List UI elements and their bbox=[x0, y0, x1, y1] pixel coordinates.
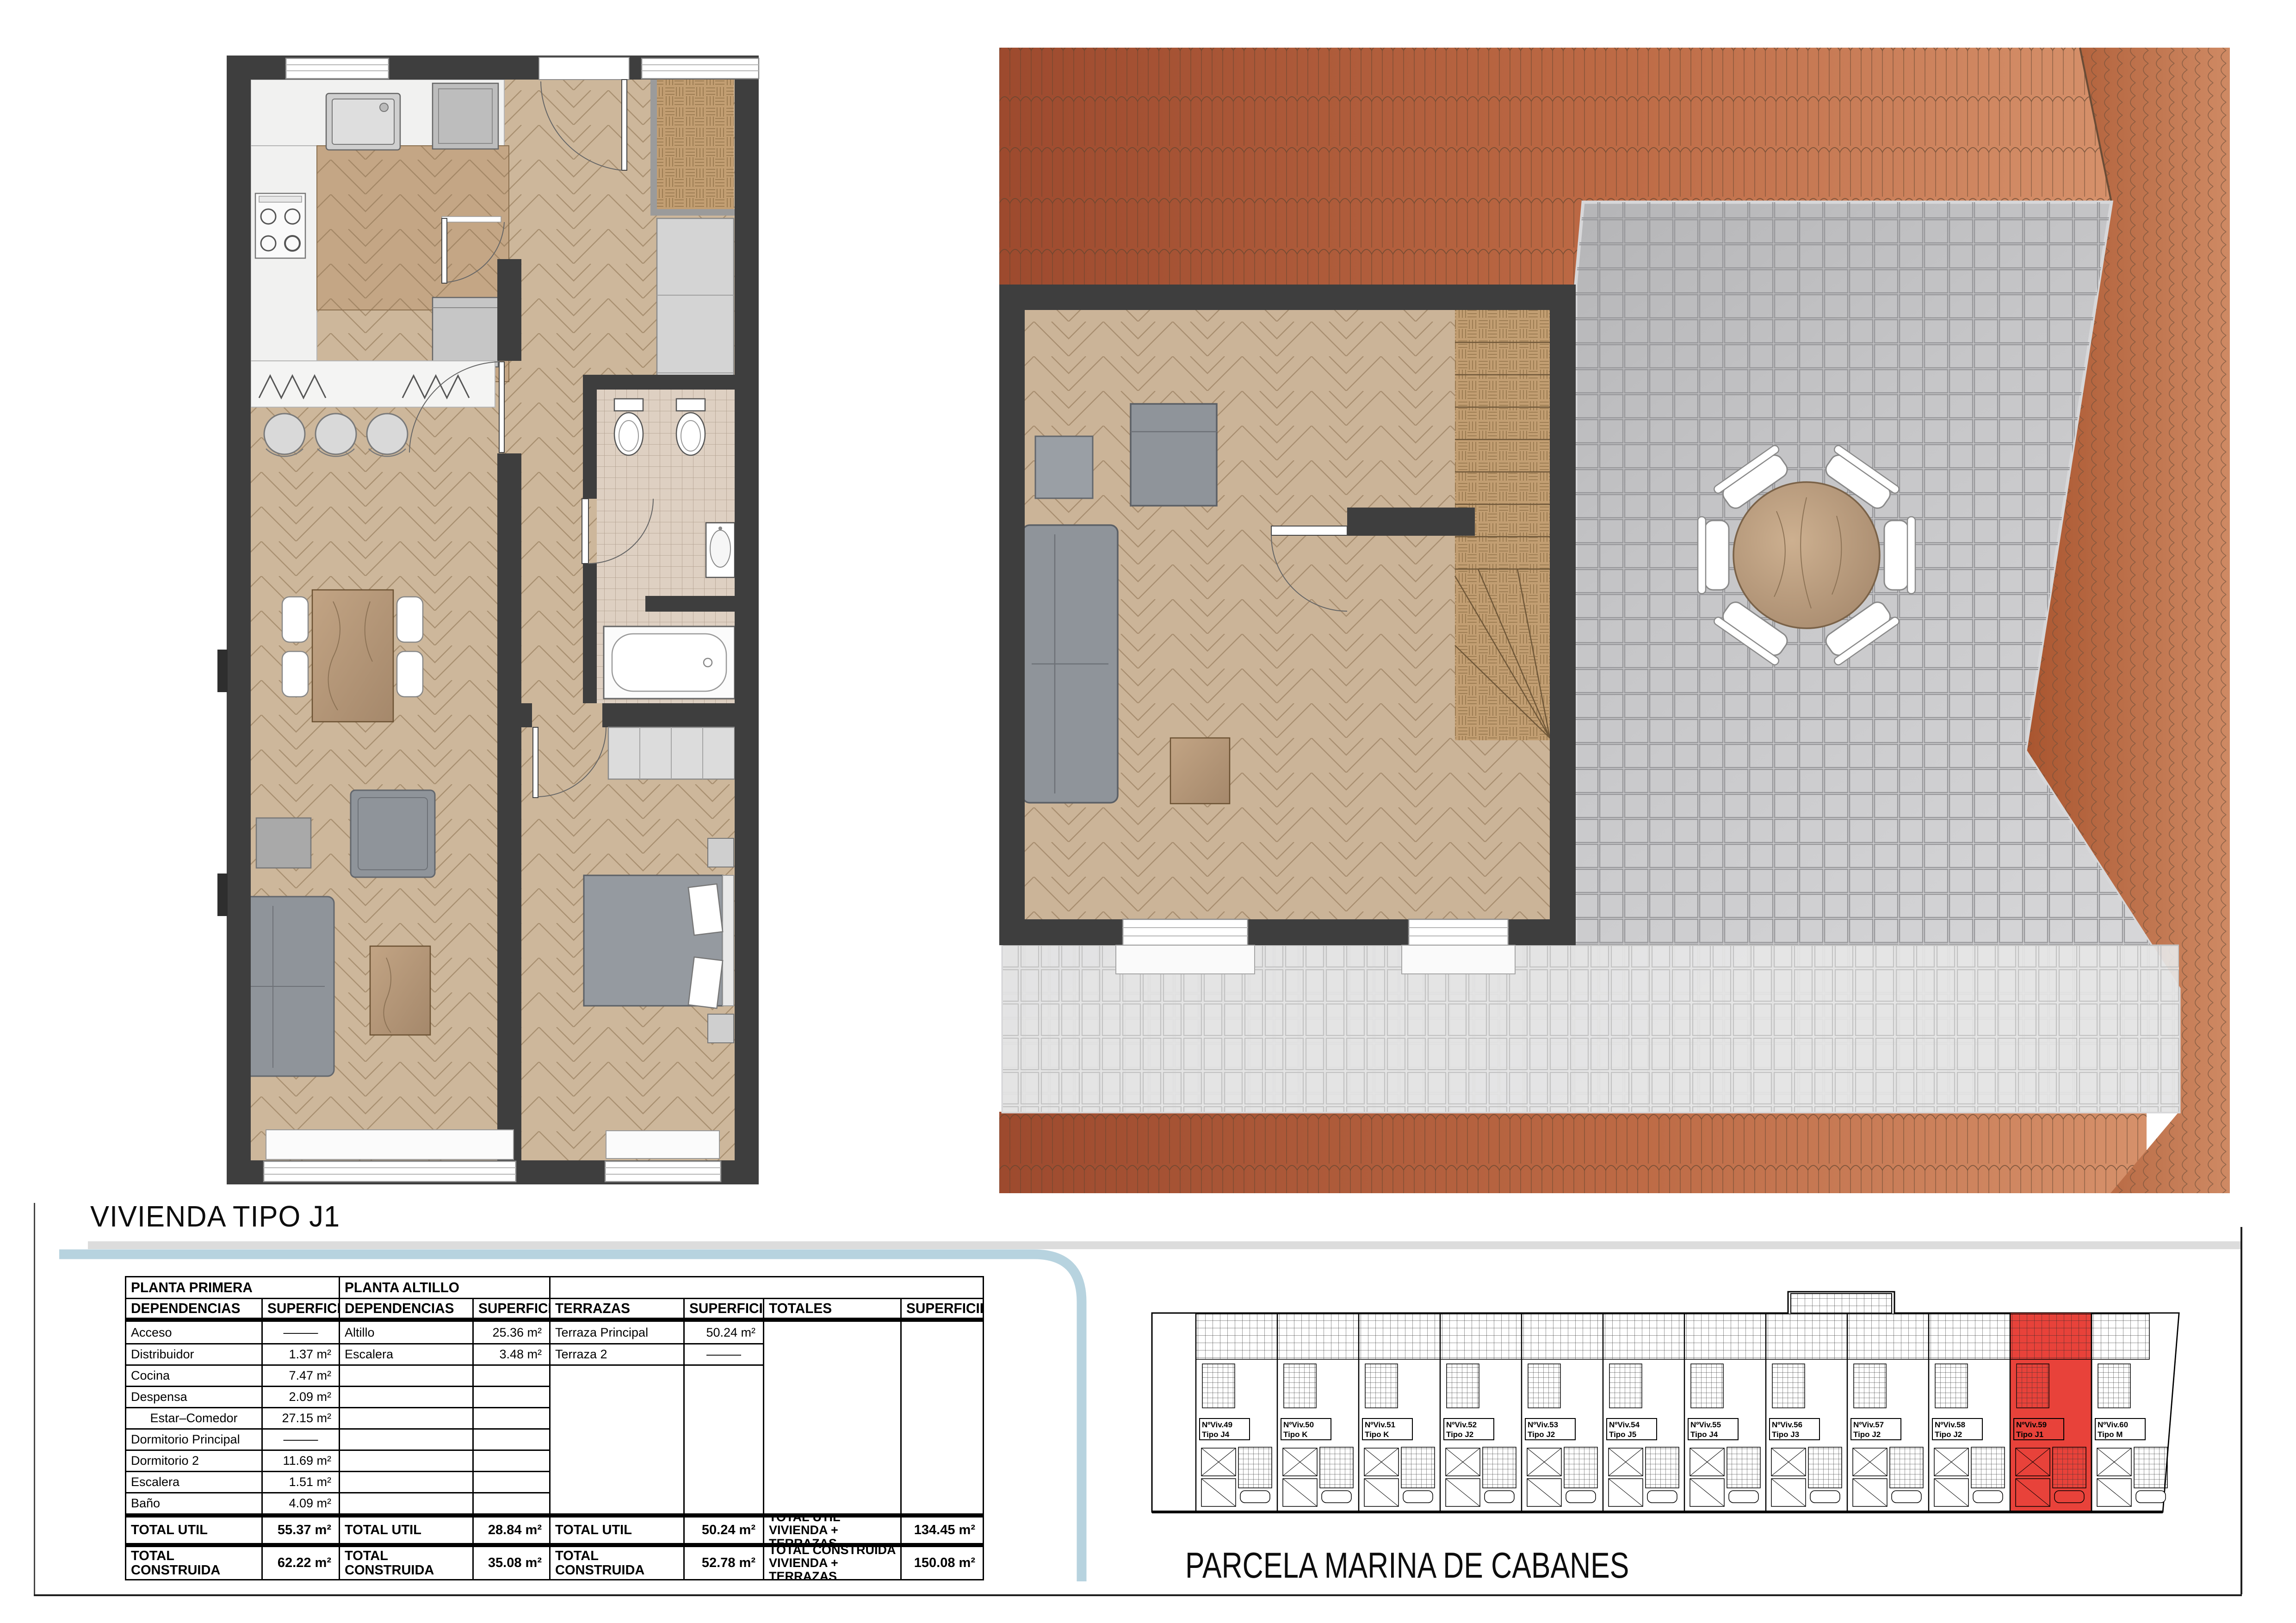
svg-text:NºViv.54: NºViv.54 bbox=[1609, 1420, 1640, 1429]
parcel-unit-NºViv.59: NºViv.59Tipo J1 bbox=[2010, 1313, 2092, 1512]
drawing-sheet: { "page": {"width": 4963, "height": 3508… bbox=[0, 0, 2296, 1623]
svg-text:Tipo J2: Tipo J2 bbox=[1853, 1430, 1881, 1439]
svg-text:Tipo J2: Tipo J2 bbox=[1446, 1430, 1473, 1439]
table-cell-r4-c7 bbox=[902, 1407, 983, 1428]
bathroom bbox=[582, 375, 735, 703]
stair-wall-stub bbox=[1347, 508, 1475, 536]
terrace-chair bbox=[1884, 517, 1915, 594]
table-cell-r7-c1: 1.51 m² bbox=[263, 1471, 340, 1492]
table-cell-r2-c0: Cocina bbox=[126, 1364, 263, 1386]
parcel-caption: PARCELA MARINA DE CABANES bbox=[1185, 1544, 1629, 1586]
table-cell-r0-c2: Altillo bbox=[340, 1322, 474, 1343]
kitchen-sink bbox=[326, 93, 400, 150]
window-sill bbox=[266, 1130, 514, 1159]
table-cell-r7-c5 bbox=[685, 1471, 764, 1492]
table-cell-r6-c7 bbox=[902, 1450, 983, 1471]
side-table bbox=[256, 818, 311, 868]
parcel-site-plan: NºViv.49Tipo J4NºViv.50Tipo KNºViv.51Tip… bbox=[1131, 1291, 2214, 1522]
svg-text:NºViv.49: NºViv.49 bbox=[1202, 1420, 1232, 1429]
svg-text:Tipo J2: Tipo J2 bbox=[1935, 1430, 1962, 1439]
frame-line-left bbox=[34, 1203, 35, 1596]
table-cell-r5-c5 bbox=[685, 1428, 764, 1450]
roof-tiles-bottom bbox=[999, 1112, 2147, 1193]
pillow bbox=[688, 884, 723, 935]
table-cell-r3-c5 bbox=[685, 1386, 764, 1407]
svg-text:Tipo J4: Tipo J4 bbox=[1690, 1430, 1718, 1439]
table-cell-r6-c1: 11.69 m² bbox=[263, 1450, 340, 1471]
table-cell-r7-c6 bbox=[764, 1471, 902, 1492]
stove bbox=[255, 193, 305, 258]
table-cell-r3-c4 bbox=[551, 1386, 685, 1407]
total-construida-c0: TOTAL CONSTRUIDA bbox=[126, 1547, 263, 1579]
table-col-header-1: SUPERFICIES bbox=[263, 1299, 340, 1318]
table-cell-r3-c0: Despensa bbox=[126, 1386, 263, 1407]
wall-pilasters bbox=[217, 650, 228, 916]
oven-appliance bbox=[433, 83, 498, 149]
table-cell-r1-c1: 1.37 m² bbox=[263, 1343, 340, 1364]
coffee-table bbox=[370, 946, 430, 1035]
table-cell-r1-c4: Terraza 2 bbox=[551, 1343, 685, 1364]
svg-text:NºViv.51: NºViv.51 bbox=[1365, 1420, 1395, 1429]
table-cell-r1-c7 bbox=[902, 1343, 983, 1364]
surfaces-table: PLANTA PRIMERAPLANTA ALTILLODEPENDENCIAS… bbox=[125, 1276, 984, 1580]
svg-text:Tipo K: Tipo K bbox=[1283, 1430, 1308, 1439]
total-util-c0: TOTAL UTIL bbox=[126, 1518, 263, 1543]
table-cell-r5-c7 bbox=[902, 1428, 983, 1450]
table-cell-r4-c0: Estar–Comedor bbox=[126, 1407, 263, 1428]
page-title: VIVIENDA TIPO J1 bbox=[90, 1199, 340, 1233]
table-cell-r5-c2 bbox=[340, 1428, 474, 1450]
table-cell-r8-c4 bbox=[551, 1492, 685, 1513]
table-cell-r3-c3 bbox=[474, 1386, 551, 1407]
total-util-c2: TOTAL UTIL bbox=[340, 1518, 474, 1543]
table-group-2 bbox=[551, 1277, 983, 1298]
double-bed bbox=[584, 875, 734, 1008]
table-col-header-2: DEPENDENCIAS bbox=[340, 1299, 474, 1318]
bath-sink bbox=[706, 523, 735, 577]
window-sill bbox=[1402, 945, 1515, 974]
table-col-header-5: SUPERFICIES bbox=[685, 1299, 764, 1318]
chair bbox=[397, 597, 423, 642]
table-cell-r5-c4 bbox=[551, 1428, 685, 1450]
total-construida-c3: 35.08 m² bbox=[474, 1547, 551, 1579]
terrace-chair bbox=[1698, 517, 1729, 594]
parcel-unit-NºViv.60: NºViv.60Tipo M bbox=[2092, 1313, 2179, 1512]
table-cell-r3-c2 bbox=[340, 1386, 474, 1407]
table-group-1: PLANTA ALTILLO bbox=[340, 1277, 551, 1298]
altillo-table bbox=[1131, 404, 1217, 506]
stair-door bbox=[1271, 526, 1347, 535]
table-cell-r4-c4 bbox=[551, 1407, 685, 1428]
table-cell-r8-c6 bbox=[764, 1492, 902, 1513]
bar-stools bbox=[264, 414, 408, 456]
table-cell-r6-c4 bbox=[551, 1450, 685, 1471]
table-cell-r3-c1: 2.09 m² bbox=[263, 1386, 340, 1407]
table-cell-r1-c0: Distribuidor bbox=[126, 1343, 263, 1364]
total-construida-c4: TOTAL CONSTRUIDA bbox=[551, 1547, 685, 1579]
terrace-round-table bbox=[1733, 482, 1880, 628]
table-cell-r0-c1: ––––– bbox=[263, 1322, 340, 1343]
table-cell-r1-c2: Escalera bbox=[340, 1343, 474, 1364]
chair bbox=[282, 651, 308, 697]
window-bedroom-bottom bbox=[605, 1161, 721, 1182]
table-cell-r5-c0: Dormitorio Principal bbox=[126, 1428, 263, 1450]
table-col-header-7: SUPERFICIES bbox=[902, 1299, 983, 1318]
fridge-appliance bbox=[433, 297, 498, 367]
nightstand bbox=[708, 838, 734, 867]
table-cell-r7-c2 bbox=[340, 1471, 474, 1492]
total-util-c4: TOTAL UTIL bbox=[551, 1518, 685, 1543]
table-cell-r4-c3 bbox=[474, 1407, 551, 1428]
table-cell-r8-c5 bbox=[685, 1492, 764, 1513]
planta-altillo-roofplan bbox=[999, 44, 2230, 1196]
altillo-room bbox=[1022, 310, 1550, 919]
svg-text:NºViv.60: NºViv.60 bbox=[2098, 1420, 2128, 1429]
altillo-coffee-table bbox=[1170, 738, 1230, 804]
nightstand bbox=[708, 1014, 734, 1043]
planta-primera-floorplan bbox=[227, 56, 759, 1184]
table-cell-r7-c4 bbox=[551, 1471, 685, 1492]
table-cell-r0-c4: Terraza Principal bbox=[551, 1322, 685, 1343]
table-cell-r5-c3 bbox=[474, 1428, 551, 1450]
table-cell-r0-c3: 25.36 m² bbox=[474, 1322, 551, 1343]
breakfast-bar bbox=[251, 361, 495, 407]
table-cell-r0-c0: Acceso bbox=[126, 1322, 263, 1343]
total-construida-c1: 62.22 m² bbox=[263, 1547, 340, 1579]
bidet bbox=[676, 399, 705, 455]
table-cell-r3-c6 bbox=[764, 1386, 902, 1407]
table-cell-r1-c3: 3.48 m² bbox=[474, 1343, 551, 1364]
table-cell-r2-c7 bbox=[902, 1364, 983, 1386]
table-cell-r2-c3 bbox=[474, 1364, 551, 1386]
altillo-armchair bbox=[1035, 436, 1093, 498]
frame-line-bottom bbox=[34, 1594, 2242, 1596]
svg-text:Tipo J3: Tipo J3 bbox=[1772, 1430, 1799, 1439]
table-cell-r8-c2 bbox=[340, 1492, 474, 1513]
table-cell-r8-c1: 4.09 m² bbox=[263, 1492, 340, 1513]
svg-text:Tipo M: Tipo M bbox=[2098, 1430, 2123, 1439]
table-cell-r2-c5 bbox=[685, 1364, 764, 1386]
svg-text:NºViv.55: NºViv.55 bbox=[1690, 1420, 1721, 1429]
frame-line-right bbox=[2240, 1227, 2242, 1594]
toilet bbox=[614, 399, 643, 455]
window-kitchen-top bbox=[286, 58, 389, 79]
table-cell-r8-c3 bbox=[474, 1492, 551, 1513]
stair-tower bbox=[1791, 1294, 1892, 1313]
table-cell-r6-c2 bbox=[340, 1450, 474, 1471]
table-cell-r1-c5: ––––– bbox=[685, 1343, 764, 1364]
table-cell-r2-c6 bbox=[764, 1364, 902, 1386]
table-cell-r0-c6 bbox=[764, 1322, 902, 1343]
gray-divider-bar bbox=[88, 1241, 2242, 1249]
total-util-c1: 55.37 m² bbox=[263, 1518, 340, 1543]
table-cell-r0-c7 bbox=[902, 1322, 983, 1343]
window-sill bbox=[1116, 945, 1255, 974]
table-cell-r4-c1: 27.15 m² bbox=[263, 1407, 340, 1428]
window-entry-top bbox=[642, 58, 759, 79]
svg-text:NºViv.58: NºViv.58 bbox=[1935, 1420, 1965, 1429]
svg-text:NºViv.53: NºViv.53 bbox=[1528, 1420, 1558, 1429]
svg-text:Tipo J4: Tipo J4 bbox=[1202, 1430, 1230, 1439]
chair bbox=[282, 597, 308, 642]
bathtub bbox=[604, 626, 735, 699]
total-construida-c5: 52.78 m² bbox=[685, 1547, 764, 1579]
svg-text:Tipo J2: Tipo J2 bbox=[1528, 1430, 1555, 1439]
table-cell-r8-c0: Baño bbox=[126, 1492, 263, 1513]
table-cell-r3-c7 bbox=[902, 1386, 983, 1407]
window-living-bottom bbox=[264, 1161, 516, 1182]
table-cell-r7-c0: Escalera bbox=[126, 1471, 263, 1492]
total-construida-c7: 150.08 m² bbox=[902, 1547, 983, 1579]
svg-text:NºViv.52: NºViv.52 bbox=[1446, 1420, 1477, 1429]
table-col-header-0: DEPENDENCIAS bbox=[126, 1299, 263, 1318]
svg-text:NºViv.56: NºViv.56 bbox=[1772, 1420, 1802, 1429]
svg-text:NºViv.59: NºViv.59 bbox=[2016, 1420, 2047, 1429]
table-cell-r6-c0: Dormitorio 2 bbox=[126, 1450, 263, 1471]
altillo-sofa bbox=[1022, 525, 1118, 803]
table-cell-r2-c4 bbox=[551, 1364, 685, 1386]
table-cell-r2-c2 bbox=[340, 1364, 474, 1386]
svg-text:Tipo J5: Tipo J5 bbox=[1609, 1430, 1636, 1439]
pillow bbox=[688, 957, 723, 1009]
svg-text:NºViv.57: NºViv.57 bbox=[1853, 1420, 1884, 1429]
total-construida-c2: TOTAL CONSTRUIDA bbox=[340, 1547, 474, 1579]
table-col-header-3: SUPERFICIES bbox=[474, 1299, 551, 1318]
table-col-header-6: TOTALES bbox=[764, 1299, 902, 1318]
table-cell-r6-c5 bbox=[685, 1450, 764, 1471]
svg-text:Tipo J1: Tipo J1 bbox=[2016, 1430, 2043, 1439]
chair bbox=[397, 651, 423, 697]
total-construida-c6: TOTAL CONSTRUIDA VIVIENDA + TERRAZAS bbox=[764, 1547, 902, 1579]
table-cell-r5-c6 bbox=[764, 1428, 902, 1450]
table-cell-r2-c1: 7.47 m² bbox=[263, 1364, 340, 1386]
total-util-c7: 134.45 m² bbox=[902, 1518, 983, 1543]
table-cell-r6-c6 bbox=[764, 1450, 902, 1471]
table-cell-r8-c7 bbox=[902, 1492, 983, 1513]
table-cell-r4-c6 bbox=[764, 1407, 902, 1428]
table-cell-r5-c1: ––––– bbox=[263, 1428, 340, 1450]
table-cell-r0-c5: 50.24 m² bbox=[685, 1322, 764, 1343]
table-cell-r7-c3 bbox=[474, 1471, 551, 1492]
table-cell-r4-c2 bbox=[340, 1407, 474, 1428]
svg-text:Tipo K: Tipo K bbox=[1365, 1430, 1389, 1439]
table-cell-r1-c6 bbox=[764, 1343, 902, 1364]
entry-porch-floor bbox=[650, 80, 739, 216]
table-cell-r7-c7 bbox=[902, 1471, 983, 1492]
total-util-c5: 50.24 m² bbox=[685, 1518, 764, 1543]
table-col-header-4: TERRAZAS bbox=[551, 1299, 685, 1318]
armchair bbox=[351, 790, 435, 877]
sofa bbox=[240, 897, 334, 1076]
dining-table bbox=[312, 590, 393, 722]
total-util-c6: TOTAL UTIL VIVIENDA + TERRAZAS bbox=[764, 1518, 902, 1543]
window-sill bbox=[606, 1131, 719, 1158]
table-cell-r6-c3 bbox=[474, 1450, 551, 1471]
table-cell-r4-c5 bbox=[685, 1407, 764, 1428]
svg-text:NºViv.50: NºViv.50 bbox=[1283, 1420, 1314, 1429]
table-group-0: PLANTA PRIMERA bbox=[126, 1277, 340, 1298]
total-util-c3: 28.84 m² bbox=[474, 1518, 551, 1543]
